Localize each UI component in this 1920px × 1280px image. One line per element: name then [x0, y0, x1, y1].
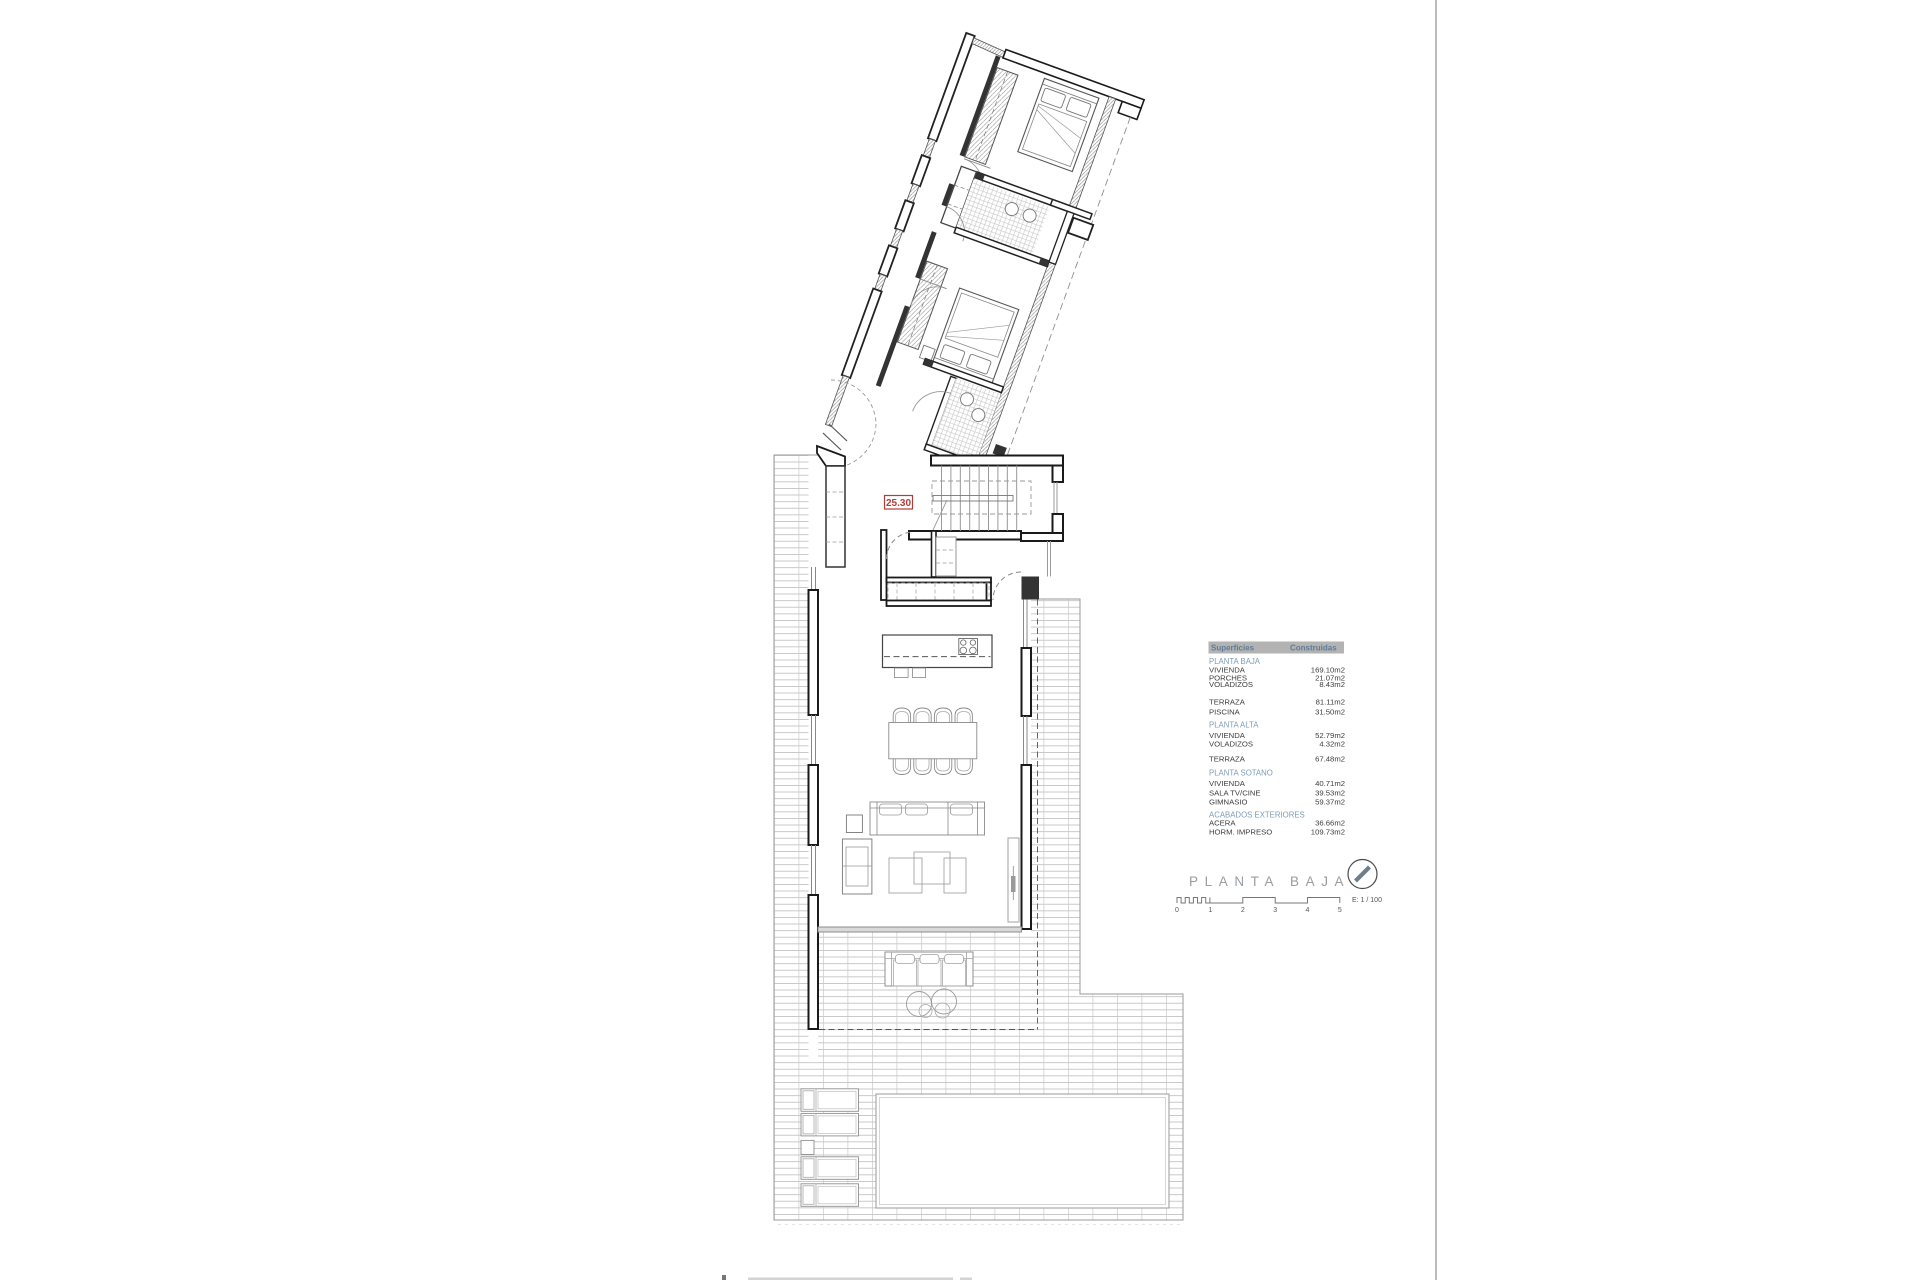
svg-text:4.32m2: 4.32m2: [1319, 740, 1345, 749]
svg-text:3: 3: [1273, 907, 1277, 914]
svg-text:1: 1: [1209, 907, 1213, 914]
svg-text:81.11m2: 81.11m2: [1316, 698, 1345, 707]
svg-text:59.37m2: 59.37m2: [1315, 798, 1345, 807]
svg-text:31.50m2: 31.50m2: [1315, 708, 1345, 717]
svg-text:36.66m2: 36.66m2: [1315, 819, 1345, 828]
svg-text:40.71m2: 40.71m2: [1315, 779, 1345, 788]
svg-text:0: 0: [1175, 907, 1179, 914]
svg-text:TERRAZA: TERRAZA: [1209, 755, 1246, 764]
svg-text:Superficies: Superficies: [1211, 644, 1255, 653]
svg-text:BAJA: BAJA: [1290, 874, 1350, 889]
svg-text:GIMNASIO: GIMNASIO: [1209, 798, 1247, 807]
svg-text:VOLADIZOS: VOLADIZOS: [1209, 740, 1253, 749]
svg-text:PLANTA: PLANTA: [1189, 874, 1280, 889]
svg-text:ACERA: ACERA: [1209, 819, 1236, 828]
svg-text:25.30: 25.30: [886, 498, 911, 509]
svg-text:PLANTA SOTANO: PLANTA SOTANO: [1209, 769, 1273, 778]
svg-text:PISCINA: PISCINA: [1209, 708, 1241, 717]
svg-text:HORM. IMPRESO: HORM. IMPRESO: [1209, 828, 1272, 837]
svg-text:4: 4: [1306, 907, 1310, 914]
svg-text:67.48m2: 67.48m2: [1315, 755, 1345, 764]
svg-text:109.73m2: 109.73m2: [1311, 828, 1345, 837]
svg-text:5: 5: [1338, 907, 1342, 914]
svg-text:8.43m2: 8.43m2: [1319, 680, 1345, 689]
svg-text:Construidas: Construidas: [1290, 644, 1337, 653]
svg-text:39.53m2: 39.53m2: [1315, 789, 1345, 798]
svg-text:SALA TV/CINE: SALA TV/CINE: [1209, 789, 1261, 798]
svg-text:2: 2: [1241, 907, 1245, 914]
svg-text:PLANTA ALTA: PLANTA ALTA: [1209, 721, 1259, 730]
svg-text:TERRAZA: TERRAZA: [1209, 698, 1246, 707]
svg-text:VIVIENDA: VIVIENDA: [1209, 779, 1246, 788]
svg-text:E: 1 / 100: E: 1 / 100: [1352, 897, 1382, 904]
svg-text:VOLADIZOS: VOLADIZOS: [1209, 680, 1253, 689]
